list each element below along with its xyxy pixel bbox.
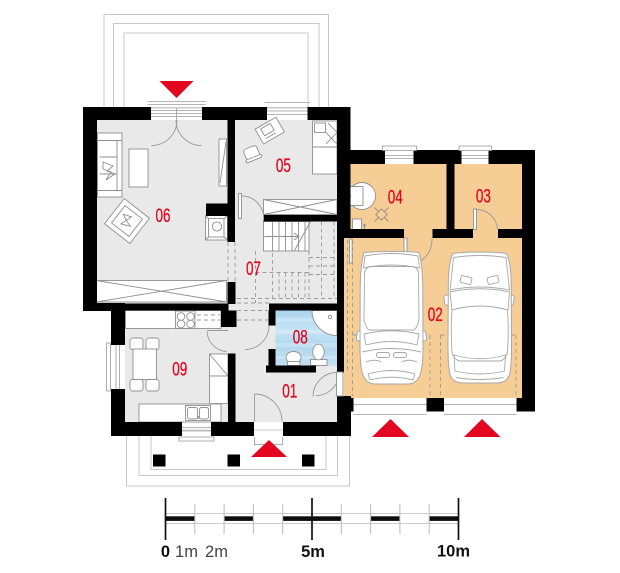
svg-text:10m: 10m [437,543,470,561]
svg-text:08: 08 [293,327,308,348]
svg-text:0: 0 [161,543,170,561]
svg-text:09: 09 [172,360,187,381]
svg-text:5m: 5m [301,543,325,561]
svg-text:02: 02 [428,305,443,326]
svg-text:03: 03 [476,187,491,208]
svg-text:01: 01 [282,382,297,403]
svg-text:2m: 2m [205,543,228,561]
svg-text:04: 04 [388,188,403,209]
svg-text:06: 06 [156,206,171,227]
svg-text:05: 05 [276,156,291,177]
svg-text:1m: 1m [175,543,198,561]
svg-text:07: 07 [246,259,261,280]
